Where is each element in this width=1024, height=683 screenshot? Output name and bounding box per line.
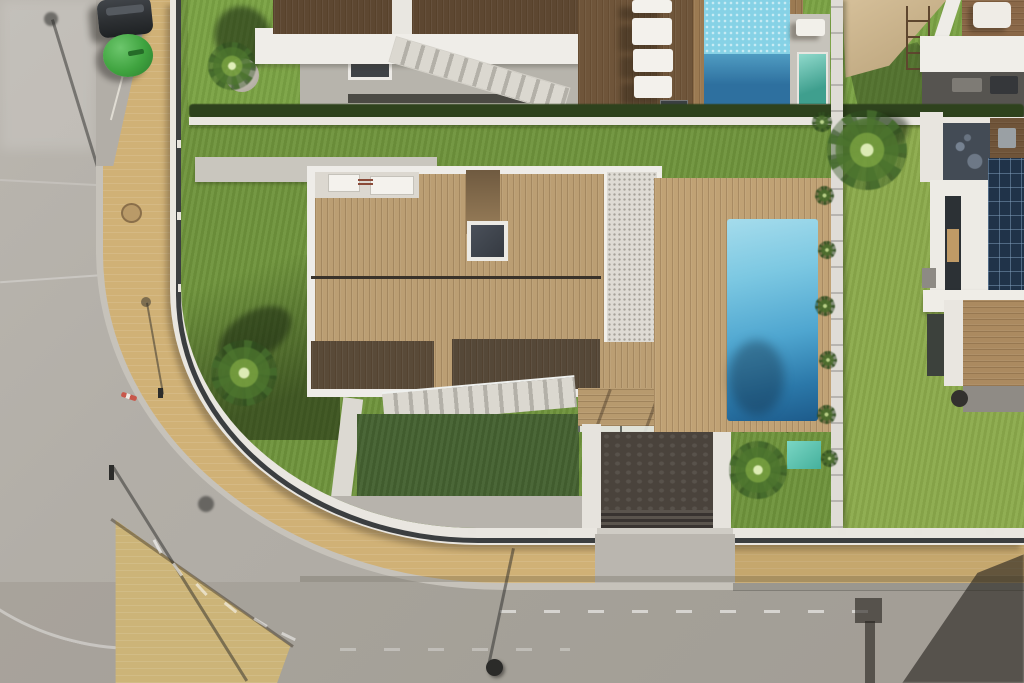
fence-shrub: [821, 450, 838, 467]
lamp-shadow-head: [141, 297, 151, 307]
round-planter: [951, 390, 968, 407]
fence-shrub: [817, 405, 836, 424]
lamp-shadow-head: [44, 12, 58, 26]
sun-lounger: [632, 0, 672, 13]
ac-unit: [328, 174, 360, 192]
patio-furniture: [990, 76, 1018, 94]
driveway-wall: [582, 424, 601, 528]
gravel-strip: [604, 172, 660, 342]
potted-palm: [208, 42, 256, 90]
lamp-pole-base: [158, 388, 163, 398]
rs-villa-white-wall: [920, 112, 943, 182]
lane-dashes: [340, 648, 570, 651]
teal-mat: [787, 441, 821, 469]
fence-shrub: [812, 112, 832, 132]
sun-lounger: [796, 19, 825, 36]
rs-villa-door: [947, 229, 959, 262]
garden-palm: [729, 441, 787, 499]
street-lamp-head: [486, 659, 503, 676]
garden-palm-large: [827, 110, 907, 190]
fence-gap: [838, 529, 846, 535]
dividing-fence-vertical: [831, 0, 843, 528]
lamp-cast-shadow-head: [855, 598, 882, 623]
rs-villa-dark-door: [927, 314, 944, 376]
roof-gap-landing: [392, 0, 412, 34]
roof-vent: [998, 128, 1016, 148]
patio-furniture: [952, 78, 982, 92]
curb-shadow: [300, 576, 1024, 582]
perimeter-path: [318, 496, 604, 528]
lane-dashes: [500, 610, 880, 613]
solar-panels: [988, 158, 1024, 300]
sun-lounger: [634, 76, 672, 98]
lower-lawn-shaded: [357, 414, 579, 504]
fence-shrub: [818, 241, 836, 259]
roof-skylight: [467, 221, 508, 261]
fence-shrub: [815, 186, 834, 205]
manhole-cover: [121, 203, 142, 223]
ac-unit: [922, 268, 936, 288]
tr-villa-white-band: [920, 36, 1024, 72]
villa-top-roof: [412, 0, 580, 34]
wall-cast-shadow: [733, 583, 1024, 591]
lamp-shadow-head: [198, 496, 214, 512]
lamp-pole-base: [109, 465, 114, 480]
rs-villa-garage-pad: [963, 386, 1024, 412]
fence-gap: [468, 528, 476, 534]
deck-shadow-area: [311, 341, 434, 389]
sun-lounger: [633, 49, 673, 72]
fence-gap: [914, 529, 922, 535]
rooftop-pipes: [358, 178, 373, 185]
driveway-wall: [713, 432, 731, 528]
deck-seam: [311, 276, 601, 279]
ac-unit: [370, 176, 414, 195]
neighbour-pool-deep: [704, 54, 790, 105]
neighbour-pool-shallow: [704, 0, 790, 54]
property-block: [181, 0, 1024, 528]
garage-gate-slats: [601, 510, 713, 528]
villa-top-roof: [273, 0, 392, 34]
fence-gap: [986, 529, 994, 535]
lamp-cast-shadow-pole: [865, 621, 875, 683]
rs-villa-terrace: [963, 300, 1024, 386]
plunge-pool: [797, 52, 828, 106]
tr-villa-chair: [973, 2, 1011, 28]
fence-shrub: [819, 351, 837, 369]
pool-palm-reflection: [729, 340, 784, 415]
garden-palm: [211, 340, 277, 406]
fence-shrub: [815, 296, 835, 316]
aerial-photo: [0, 0, 1024, 683]
sun-lounger: [632, 18, 672, 45]
rs-villa-side-wall: [944, 300, 963, 386]
fence-gap: [540, 529, 548, 535]
fence-gap: [762, 529, 770, 535]
rs-villa-mosaic-court: [943, 123, 992, 182]
